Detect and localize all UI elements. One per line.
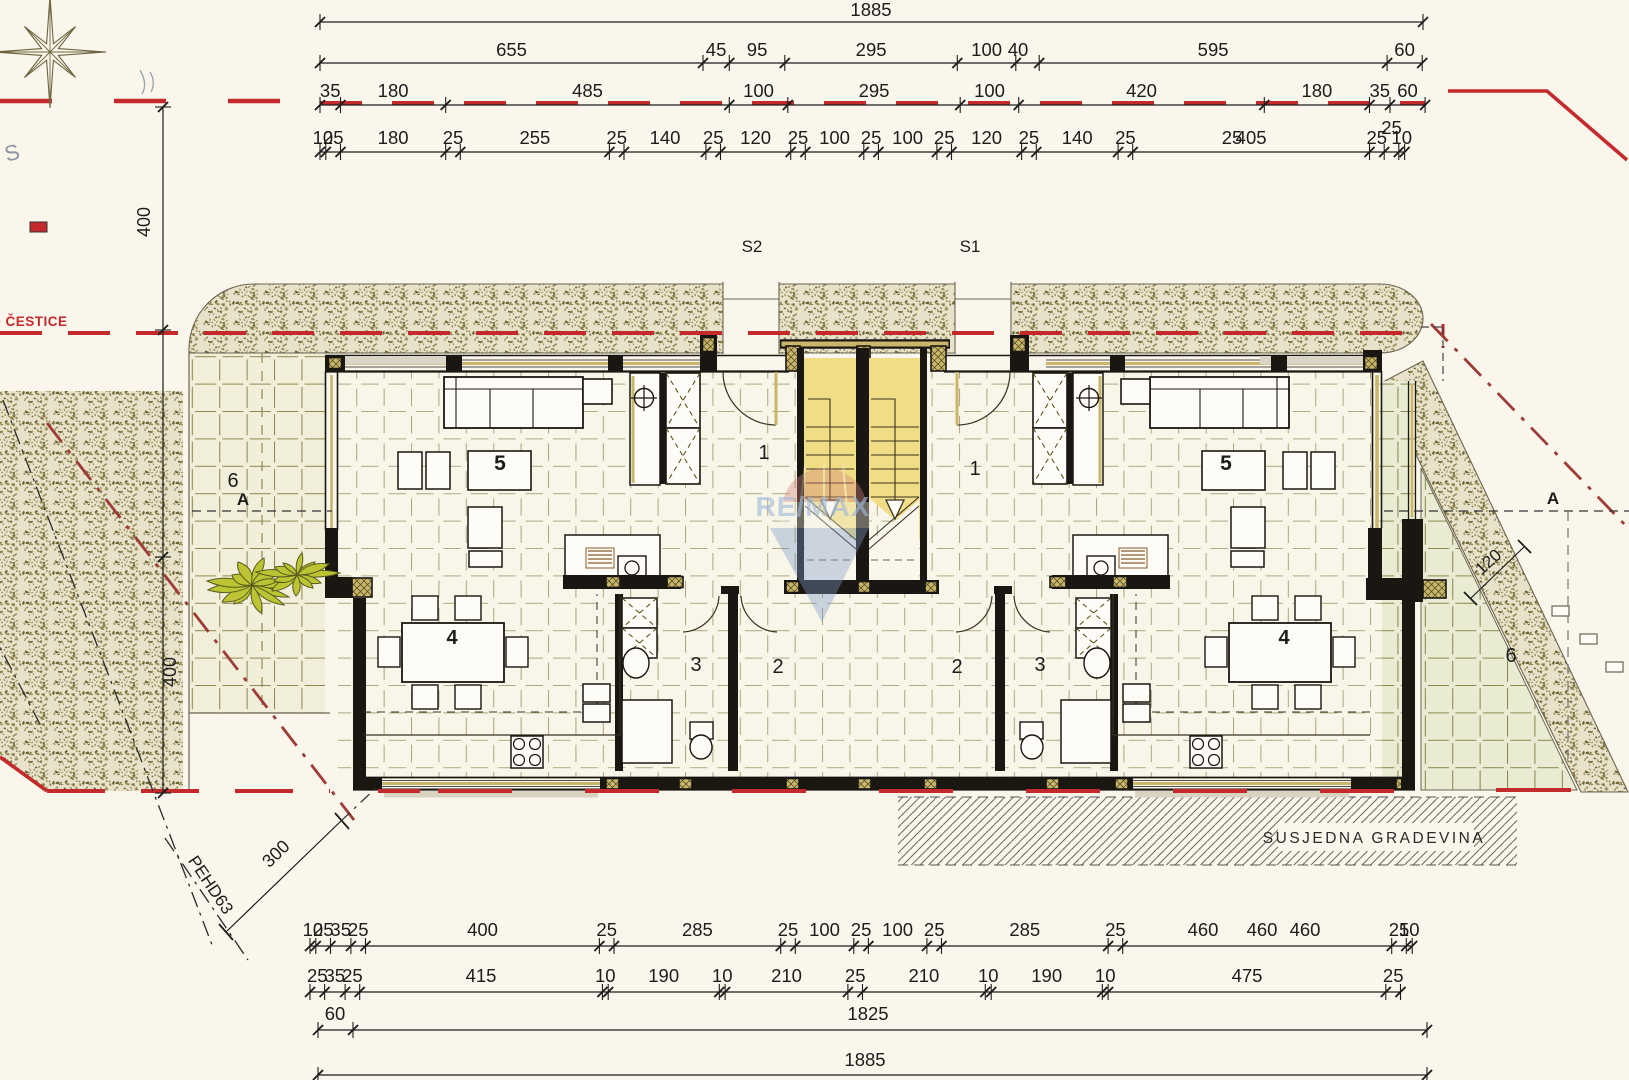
svg-text:4: 4: [446, 627, 458, 649]
svg-text:25: 25: [845, 965, 866, 986]
svg-text:4: 4: [1278, 627, 1290, 649]
svg-text:25: 25: [703, 127, 724, 148]
svg-text:45: 45: [706, 39, 727, 60]
svg-text:100: 100: [809, 919, 840, 940]
svg-text:25: 25: [778, 919, 799, 940]
svg-text:180: 180: [378, 80, 409, 101]
svg-text:460: 460: [1247, 919, 1278, 940]
svg-text:460: 460: [1188, 919, 1219, 940]
svg-text:25: 25: [1105, 919, 1126, 940]
svg-text:A: A: [237, 490, 249, 509]
svg-text:295: 295: [856, 39, 887, 60]
svg-text:25: 25: [788, 127, 809, 148]
svg-text:255: 255: [519, 127, 550, 148]
svg-text:100: 100: [974, 80, 1005, 101]
svg-text:25: 25: [606, 127, 627, 148]
svg-text:25: 25: [934, 127, 955, 148]
svg-text:1: 1: [969, 458, 980, 480]
svg-text:100: 100: [743, 80, 774, 101]
svg-text:25: 25: [1019, 127, 1040, 148]
svg-text:2: 2: [951, 656, 962, 678]
svg-text:1: 1: [758, 442, 769, 464]
svg-text:420: 420: [1126, 80, 1157, 101]
svg-text:295: 295: [859, 80, 890, 101]
svg-text:6: 6: [1505, 645, 1516, 667]
svg-text:A: A: [1547, 489, 1559, 508]
svg-text:2: 2: [772, 656, 783, 678]
svg-text:60: 60: [325, 1003, 346, 1024]
svg-text:6: 6: [227, 470, 238, 492]
svg-text:655: 655: [496, 39, 527, 60]
svg-text:25: 25: [1115, 127, 1136, 148]
svg-text:60: 60: [1394, 39, 1415, 60]
svg-text:285: 285: [682, 919, 713, 940]
svg-text:140: 140: [650, 127, 681, 148]
svg-text:210: 210: [908, 965, 939, 986]
svg-text:180: 180: [1301, 80, 1332, 101]
svg-text:S1: S1: [960, 237, 981, 256]
svg-text:460: 460: [1290, 919, 1321, 940]
svg-text:25: 25: [323, 127, 344, 148]
svg-text:10: 10: [978, 965, 999, 986]
svg-text:10: 10: [1399, 919, 1420, 940]
svg-text:400: 400: [467, 919, 498, 940]
svg-text:10: 10: [1095, 965, 1116, 986]
svg-text:475: 475: [1232, 965, 1263, 986]
svg-text:180: 180: [378, 127, 409, 148]
svg-text:190: 190: [648, 965, 679, 986]
svg-text:10: 10: [595, 965, 616, 986]
svg-text:5: 5: [494, 452, 506, 475]
svg-text:1885: 1885: [844, 1049, 885, 1070]
svg-text:140: 140: [1062, 127, 1093, 148]
svg-text:35: 35: [320, 80, 341, 101]
svg-text:100: 100: [892, 127, 923, 148]
svg-text:5: 5: [1220, 452, 1232, 475]
svg-text:S2: S2: [742, 237, 763, 256]
svg-text:1885: 1885: [850, 0, 891, 20]
svg-text:400: 400: [134, 207, 154, 237]
svg-text:40: 40: [1008, 39, 1029, 60]
svg-text:35: 35: [1370, 80, 1391, 101]
svg-text:25: 25: [924, 919, 945, 940]
svg-text:285: 285: [1009, 919, 1040, 940]
svg-text:210: 210: [771, 965, 802, 986]
svg-text:120: 120: [740, 127, 771, 148]
svg-text:25: 25: [342, 965, 363, 986]
svg-text:25: 25: [1222, 127, 1243, 148]
svg-text:25: 25: [443, 127, 464, 148]
svg-text:485: 485: [572, 80, 603, 101]
svg-text:SUSJEDNA GRADEVINA: SUSJEDNA GRADEVINA: [1263, 830, 1485, 847]
svg-text:100: 100: [882, 919, 913, 940]
svg-text:25: 25: [851, 919, 872, 940]
svg-text:25: 25: [348, 919, 369, 940]
svg-text:415: 415: [466, 965, 497, 986]
svg-text:120: 120: [971, 127, 1002, 148]
svg-text:190: 190: [1031, 965, 1062, 986]
svg-text:60: 60: [1397, 80, 1418, 101]
svg-text:10: 10: [1391, 127, 1412, 148]
svg-text:25: 25: [861, 127, 882, 148]
svg-text:595: 595: [1198, 39, 1229, 60]
svg-text:3: 3: [690, 654, 701, 676]
svg-text:1825: 1825: [847, 1003, 888, 1024]
svg-text:10: 10: [712, 965, 733, 986]
svg-text:400: 400: [160, 657, 180, 687]
svg-text:25: 25: [1383, 965, 1404, 986]
svg-text:25: 25: [596, 919, 617, 940]
svg-text:100: 100: [971, 39, 1002, 60]
svg-text:3: 3: [1034, 654, 1045, 676]
svg-text:100: 100: [819, 127, 850, 148]
svg-text:NO ČESTICE: NO ČESTICE: [0, 314, 68, 329]
svg-text:RE/MAX: RE/MAX: [756, 491, 871, 522]
svg-text:95: 95: [747, 39, 768, 60]
